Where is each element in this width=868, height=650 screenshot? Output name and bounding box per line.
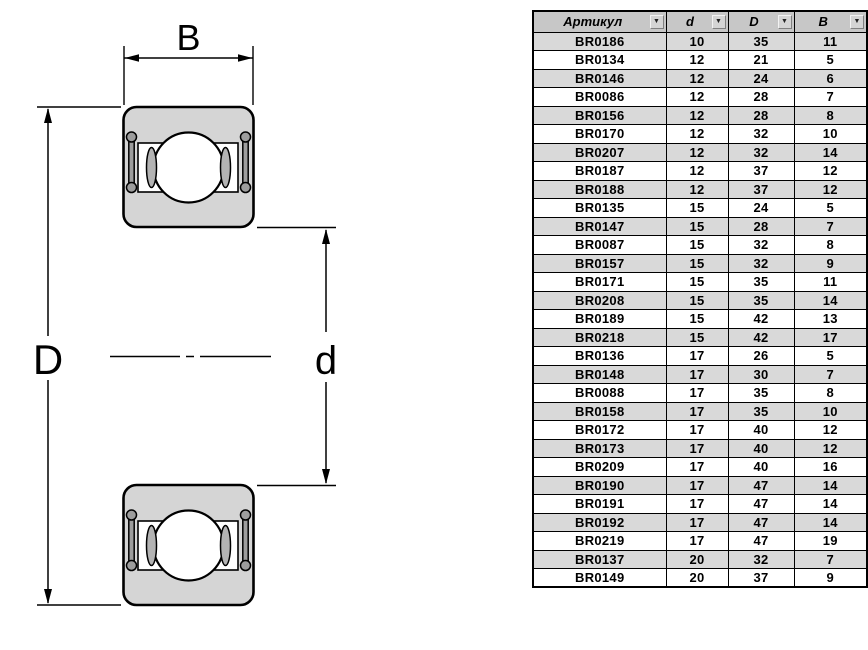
page: B D d (0, 0, 868, 650)
article-cell: BR0191 (533, 495, 666, 514)
filter-dropdown-button[interactable]: ▼ (850, 15, 864, 29)
dimension-d-bore-label: d (315, 339, 337, 383)
B-cell: 12 (794, 421, 867, 440)
d-cell: 15 (666, 254, 728, 273)
d-cell: 12 (666, 51, 728, 70)
D-cell: 35 (728, 273, 794, 292)
article-cell: BR0219 (533, 532, 666, 551)
article-cell: BR0218 (533, 328, 666, 347)
table-row: BR0149 20 37 9 (533, 569, 867, 588)
table-row: BR0087 15 32 8 (533, 236, 867, 255)
B-cell: 14 (794, 143, 867, 162)
D-cell: 24 (728, 69, 794, 88)
B-cell: 19 (794, 532, 867, 551)
column-header-D: D ▼ (728, 11, 794, 32)
D-cell: 47 (728, 495, 794, 514)
D-cell: 37 (728, 180, 794, 199)
d-cell: 12 (666, 88, 728, 107)
dimension-d-outer: D (33, 107, 121, 605)
B-cell: 14 (794, 495, 867, 514)
article-cell: BR0170 (533, 125, 666, 144)
article-cell: BR0173 (533, 439, 666, 458)
table-row: BR0219 17 47 19 (533, 532, 867, 551)
d-cell: 17 (666, 347, 728, 366)
B-cell: 16 (794, 458, 867, 477)
article-cell: BR0188 (533, 180, 666, 199)
chevron-down-icon: ▼ (653, 18, 660, 25)
B-cell: 6 (794, 69, 867, 88)
d-cell: 17 (666, 365, 728, 384)
article-cell: BR0207 (533, 143, 666, 162)
B-cell: 7 (794, 217, 867, 236)
d-cell: 17 (666, 439, 728, 458)
table-header-row: Артикул ▼ d ▼ D ▼ B ▼ (533, 11, 867, 32)
B-cell: 8 (794, 106, 867, 125)
article-cell: BR0171 (533, 273, 666, 292)
B-cell: 10 (794, 402, 867, 421)
D-cell: 42 (728, 328, 794, 347)
article-cell: BR0146 (533, 69, 666, 88)
B-cell: 17 (794, 328, 867, 347)
B-cell: 8 (794, 384, 867, 403)
D-cell: 32 (728, 236, 794, 255)
dimension-b: B (124, 17, 253, 105)
D-cell: 40 (728, 439, 794, 458)
D-cell: 32 (728, 143, 794, 162)
article-cell: BR0135 (533, 199, 666, 218)
table-row: BR0209 17 40 16 (533, 458, 867, 477)
column-header-B-label: B (797, 14, 851, 29)
table-row: BR0148 17 30 7 (533, 365, 867, 384)
bearing-diagram: B D d (0, 0, 520, 650)
article-cell: BR0189 (533, 310, 666, 329)
table-row: BR0137 20 32 7 (533, 550, 867, 569)
d-cell: 17 (666, 495, 728, 514)
d-cell: 17 (666, 513, 728, 532)
table-row: BR0173 17 40 12 (533, 439, 867, 458)
column-header-article: Артикул ▼ (533, 11, 666, 32)
d-cell: 17 (666, 402, 728, 421)
table-row: BR0188 12 37 12 (533, 180, 867, 199)
D-cell: 35 (728, 32, 794, 51)
article-cell: BR0156 (533, 106, 666, 125)
D-cell: 37 (728, 162, 794, 181)
table-row: BR0187 12 37 12 (533, 162, 867, 181)
D-cell: 28 (728, 88, 794, 107)
filter-dropdown-button[interactable]: ▼ (650, 15, 664, 29)
table-row: BR0147 15 28 7 (533, 217, 867, 236)
D-cell: 40 (728, 421, 794, 440)
d-cell: 10 (666, 32, 728, 51)
B-cell: 7 (794, 550, 867, 569)
d-cell: 17 (666, 384, 728, 403)
table-row: BR0136 17 26 5 (533, 347, 867, 366)
table-row: BR0157 15 32 9 (533, 254, 867, 273)
D-cell: 35 (728, 384, 794, 403)
d-cell: 12 (666, 106, 728, 125)
table-row: BR0088 17 35 8 (533, 384, 867, 403)
D-cell: 40 (728, 458, 794, 477)
table-row: BR0146 12 24 6 (533, 69, 867, 88)
spec-table: Артикул ▼ d ▼ D ▼ B ▼ (532, 10, 868, 588)
D-cell: 28 (728, 106, 794, 125)
dimension-d-outer-label: D (33, 336, 63, 383)
d-cell: 15 (666, 217, 728, 236)
d-cell: 15 (666, 328, 728, 347)
D-cell: 35 (728, 402, 794, 421)
B-cell: 14 (794, 513, 867, 532)
article-cell: BR0136 (533, 347, 666, 366)
B-cell: 12 (794, 439, 867, 458)
article-cell: BR0209 (533, 458, 666, 477)
B-cell: 5 (794, 347, 867, 366)
article-cell: BR0186 (533, 32, 666, 51)
article-cell: BR0086 (533, 88, 666, 107)
table-row: BR0171 15 35 11 (533, 273, 867, 292)
d-cell: 12 (666, 125, 728, 144)
filter-dropdown-button[interactable]: ▼ (778, 15, 792, 29)
table-row: BR0135 15 24 5 (533, 199, 867, 218)
table-row: BR0086 12 28 7 (533, 88, 867, 107)
table-row: BR0186 10 35 11 (533, 32, 867, 51)
D-cell: 32 (728, 550, 794, 569)
d-cell: 15 (666, 310, 728, 329)
B-cell: 9 (794, 254, 867, 273)
D-cell: 47 (728, 476, 794, 495)
article-cell: BR0134 (533, 51, 666, 70)
article-cell: BR0192 (533, 513, 666, 532)
table-row: BR0192 17 47 14 (533, 513, 867, 532)
D-cell: 21 (728, 51, 794, 70)
d-cell: 15 (666, 273, 728, 292)
article-cell: BR0187 (533, 162, 666, 181)
table-row: BR0189 15 42 13 (533, 310, 867, 329)
article-cell: BR0149 (533, 569, 666, 588)
table-row: BR0170 12 32 10 (533, 125, 867, 144)
article-cell: BR0147 (533, 217, 666, 236)
table-row: BR0190 17 47 14 (533, 476, 867, 495)
article-cell: BR0087 (533, 236, 666, 255)
B-cell: 5 (794, 199, 867, 218)
article-cell: BR0148 (533, 365, 666, 384)
D-cell: 32 (728, 254, 794, 273)
B-cell: 8 (794, 236, 867, 255)
d-cell: 20 (666, 550, 728, 569)
column-header-d-label: d (669, 14, 712, 29)
D-cell: 24 (728, 199, 794, 218)
D-cell: 30 (728, 365, 794, 384)
d-cell: 12 (666, 143, 728, 162)
d-cell: 12 (666, 69, 728, 88)
D-cell: 32 (728, 125, 794, 144)
article-cell: BR0137 (533, 550, 666, 569)
filter-dropdown-button[interactable]: ▼ (712, 15, 726, 29)
d-cell: 12 (666, 162, 728, 181)
B-cell: 9 (794, 569, 867, 588)
column-header-B: B ▼ (794, 11, 867, 32)
B-cell: 11 (794, 273, 867, 292)
bearing-bottom-section (124, 485, 254, 605)
B-cell: 10 (794, 125, 867, 144)
chevron-down-icon: ▼ (715, 18, 722, 25)
B-cell: 14 (794, 476, 867, 495)
column-header-article-label: Артикул (536, 14, 650, 29)
B-cell: 13 (794, 310, 867, 329)
dimension-b-label: B (176, 17, 200, 58)
article-cell: BR0088 (533, 384, 666, 403)
chevron-down-icon: ▼ (781, 18, 788, 25)
B-cell: 7 (794, 365, 867, 384)
table-row: BR0134 12 21 5 (533, 51, 867, 70)
bearing-top-section (124, 107, 254, 227)
B-cell: 14 (794, 291, 867, 310)
d-cell: 15 (666, 236, 728, 255)
table-row: BR0172 17 40 12 (533, 421, 867, 440)
article-cell: BR0172 (533, 421, 666, 440)
column-header-D-label: D (731, 14, 778, 29)
D-cell: 42 (728, 310, 794, 329)
article-cell: BR0208 (533, 291, 666, 310)
d-cell: 17 (666, 458, 728, 477)
B-cell: 12 (794, 180, 867, 199)
d-cell: 17 (666, 476, 728, 495)
B-cell: 7 (794, 88, 867, 107)
chevron-down-icon: ▼ (854, 18, 861, 25)
B-cell: 5 (794, 51, 867, 70)
article-cell: BR0157 (533, 254, 666, 273)
d-cell: 17 (666, 421, 728, 440)
table-row: BR0191 17 47 14 (533, 495, 867, 514)
D-cell: 28 (728, 217, 794, 236)
D-cell: 35 (728, 291, 794, 310)
D-cell: 47 (728, 532, 794, 551)
d-cell: 12 (666, 180, 728, 199)
table-row: BR0156 12 28 8 (533, 106, 867, 125)
table-row: BR0158 17 35 10 (533, 402, 867, 421)
article-cell: BR0190 (533, 476, 666, 495)
table-row: BR0218 15 42 17 (533, 328, 867, 347)
d-cell: 17 (666, 532, 728, 551)
B-cell: 12 (794, 162, 867, 181)
table-row: BR0207 12 32 14 (533, 143, 867, 162)
d-cell: 15 (666, 291, 728, 310)
column-header-d: d ▼ (666, 11, 728, 32)
D-cell: 37 (728, 569, 794, 588)
D-cell: 47 (728, 513, 794, 532)
B-cell: 11 (794, 32, 867, 51)
article-cell: BR0158 (533, 402, 666, 421)
table-row: BR0208 15 35 14 (533, 291, 867, 310)
d-cell: 20 (666, 569, 728, 588)
D-cell: 26 (728, 347, 794, 366)
d-cell: 15 (666, 199, 728, 218)
